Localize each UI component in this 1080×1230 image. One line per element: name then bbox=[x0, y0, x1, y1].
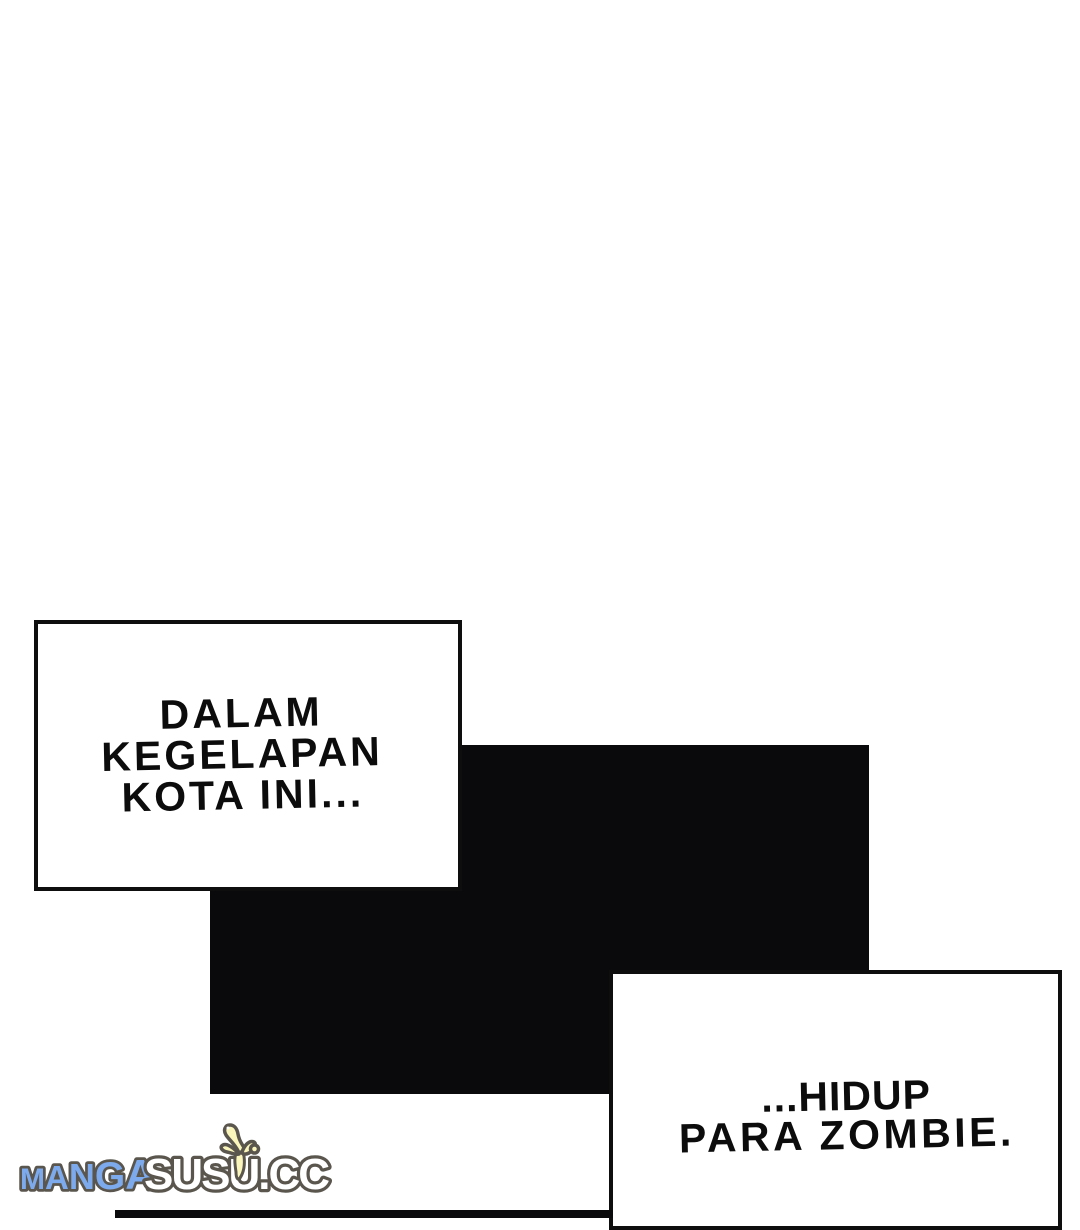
svg-text:MANGA: MANGA bbox=[20, 1151, 156, 1198]
